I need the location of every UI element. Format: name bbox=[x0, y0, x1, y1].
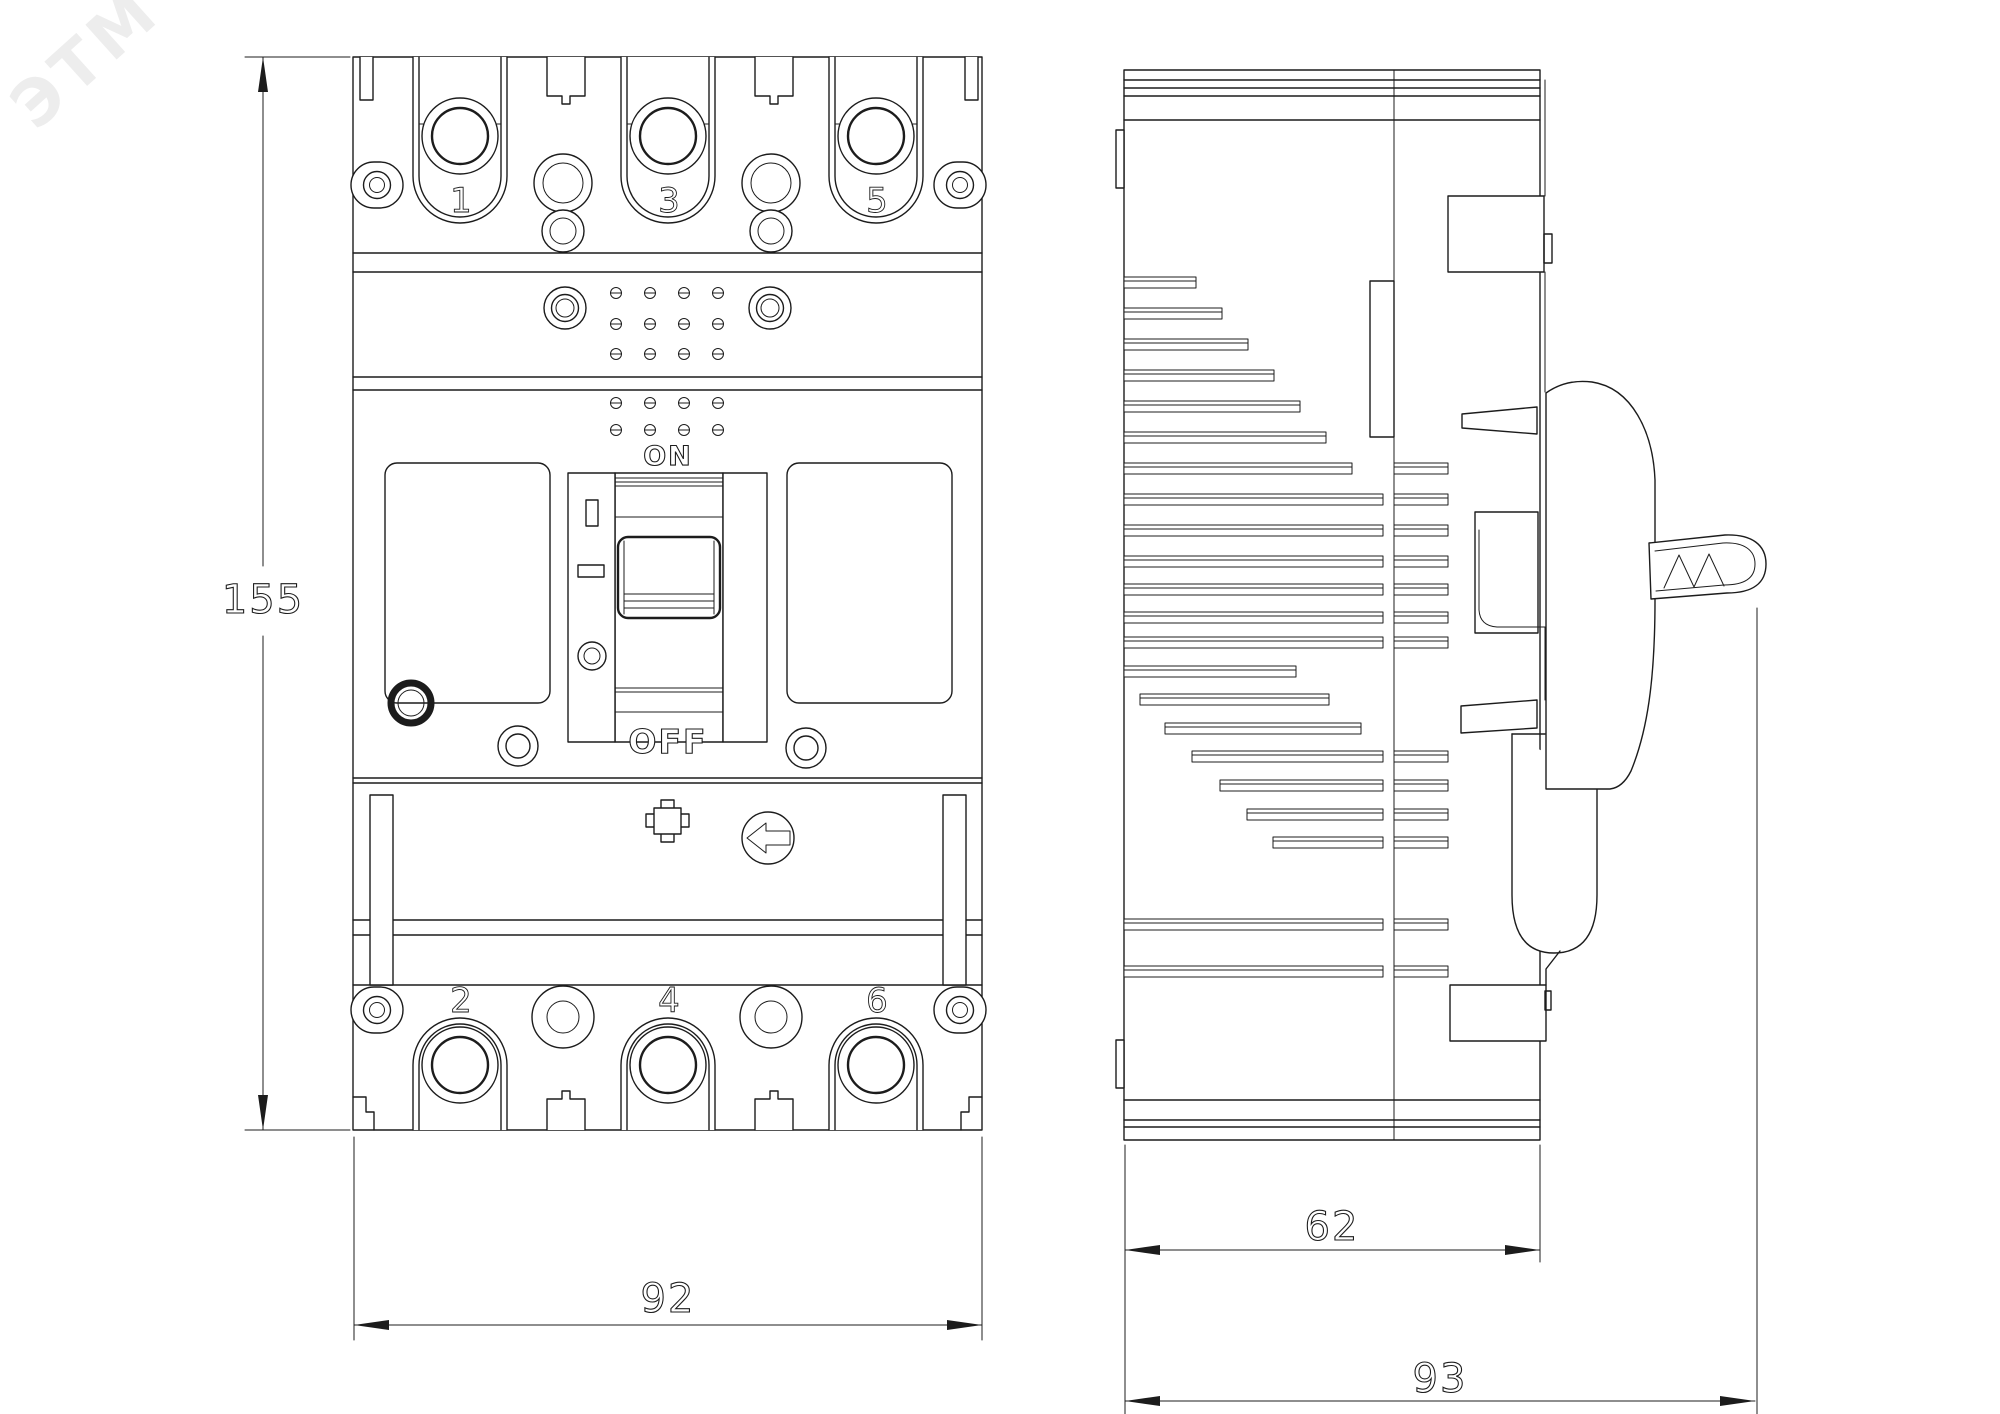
dim-body-depth: 62 bbox=[1305, 1204, 1360, 1250]
vent-hole bbox=[679, 288, 690, 299]
vent-hole bbox=[713, 425, 724, 436]
front-panel-right bbox=[787, 463, 952, 703]
cover-screw bbox=[786, 728, 826, 768]
vent-hole bbox=[611, 425, 622, 436]
vent-louver bbox=[1124, 584, 1448, 595]
cover-screw bbox=[544, 287, 586, 329]
terminal-washer bbox=[532, 986, 594, 1048]
toggle-switch bbox=[568, 473, 767, 742]
mounting-ear bbox=[934, 987, 986, 1033]
terminal-block-bottom bbox=[1450, 985, 1546, 1041]
side-clip-bottom bbox=[1116, 1040, 1124, 1088]
mounting-ear bbox=[351, 987, 403, 1033]
vent-louver bbox=[1124, 525, 1448, 536]
front-view-breaker: ON OFF 135246 bbox=[351, 57, 986, 1130]
vent-hole bbox=[679, 398, 690, 409]
vent-louver bbox=[1165, 723, 1361, 734]
front-panel-left bbox=[385, 463, 550, 703]
vent-hole bbox=[713, 319, 724, 330]
vent-hole bbox=[713, 349, 724, 360]
rail-clamp-left bbox=[370, 795, 393, 985]
vent-hole bbox=[645, 349, 656, 360]
cover-tab-lower bbox=[1461, 700, 1537, 733]
vent-louver bbox=[1124, 463, 1448, 474]
drawing-canvas: ЭТМ bbox=[0, 0, 2000, 1414]
terminal-label: 3 bbox=[658, 181, 682, 221]
vent-hole bbox=[713, 398, 724, 409]
vent-louver bbox=[1124, 494, 1448, 505]
vent-louver bbox=[1247, 809, 1448, 820]
vent-louver bbox=[1273, 837, 1448, 848]
vent-hole bbox=[679, 425, 690, 436]
vent-louver bbox=[1124, 432, 1326, 443]
vent-louver bbox=[1124, 666, 1296, 677]
vent-louver bbox=[1124, 966, 1448, 977]
mounting-ear bbox=[934, 162, 986, 208]
terminal-top: 5 bbox=[829, 57, 923, 223]
release-arrow-icon bbox=[742, 812, 794, 864]
dim-width: 92 bbox=[641, 1276, 696, 1322]
vent-hole bbox=[713, 288, 724, 299]
dim-total-depth: 93 bbox=[1413, 1356, 1468, 1402]
terminal-top: 1 bbox=[413, 57, 507, 223]
vent-louver bbox=[1124, 401, 1300, 412]
vent-louver bbox=[1124, 339, 1248, 350]
watermark-text: ЭТМ bbox=[0, 0, 175, 144]
terminal-label: 1 bbox=[450, 181, 474, 221]
vent-louver bbox=[1140, 694, 1329, 705]
vent-hole bbox=[611, 319, 622, 330]
terminal-washer bbox=[742, 154, 800, 252]
terminal-label: 4 bbox=[658, 981, 682, 1021]
vent-hole bbox=[645, 425, 656, 436]
escutcheon-dome bbox=[1546, 381, 1655, 789]
vent-louver bbox=[1192, 751, 1448, 762]
vent-louver bbox=[1124, 308, 1222, 319]
terminal-label: 2 bbox=[450, 981, 474, 1021]
vent-hole bbox=[611, 288, 622, 299]
technical-drawing: ЭТМ bbox=[0, 0, 2000, 1414]
switch-on-label: ON bbox=[643, 441, 693, 472]
vent-hole bbox=[611, 398, 622, 409]
vent-louver bbox=[1124, 637, 1448, 648]
vent-hole bbox=[645, 288, 656, 299]
terminal-washer bbox=[740, 986, 802, 1048]
terminal-washer bbox=[534, 154, 592, 252]
vent-hole bbox=[679, 349, 690, 360]
cover-screw bbox=[749, 287, 791, 329]
vent-hole bbox=[645, 319, 656, 330]
vent-louver bbox=[1124, 370, 1274, 381]
vent-hole bbox=[645, 398, 656, 409]
terminal-label: 6 bbox=[866, 981, 890, 1021]
side-handle bbox=[1649, 535, 1766, 599]
terminal-block-top bbox=[1448, 196, 1544, 272]
rail-clamp-right bbox=[943, 795, 966, 985]
cover-screw bbox=[498, 726, 538, 766]
vent-louver bbox=[1220, 780, 1448, 791]
vent-hole bbox=[611, 349, 622, 360]
vent-louver bbox=[1124, 612, 1448, 623]
vent-louver bbox=[1124, 556, 1448, 567]
switch-column-right bbox=[723, 473, 767, 742]
dim-height: 155 bbox=[222, 577, 304, 623]
vent-louver bbox=[1124, 277, 1196, 288]
terminal-label: 5 bbox=[866, 181, 890, 221]
switch-handle bbox=[618, 537, 720, 618]
terminal-top: 3 bbox=[621, 57, 715, 223]
vent-louver bbox=[1124, 919, 1448, 930]
mounting-ear bbox=[351, 162, 403, 208]
vent-hole bbox=[679, 319, 690, 330]
switch-off-label: OFF bbox=[628, 722, 707, 761]
side-clip-top bbox=[1116, 130, 1124, 188]
side-view-breaker bbox=[1116, 70, 1766, 1140]
switch-column-left bbox=[568, 473, 615, 742]
